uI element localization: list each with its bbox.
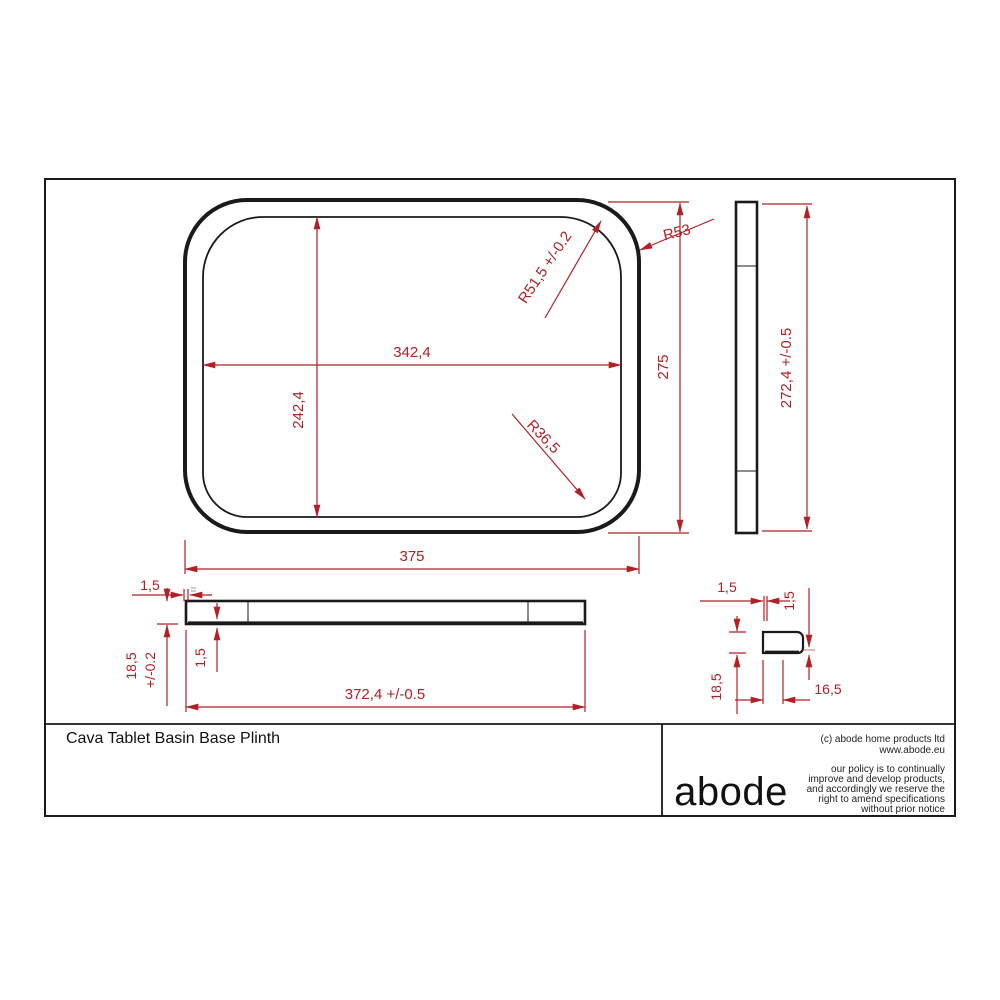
dim-front-thickness-tol: +/-0.2 — [142, 652, 158, 688]
website-line: www.abode.eu — [878, 745, 945, 756]
dim-outer-height: 275 — [655, 354, 672, 379]
dim-inner-radius-top: R51,5 +/-0.2 — [515, 228, 575, 306]
side-outline — [736, 202, 757, 533]
dim-outer-radius: R53 — [661, 221, 692, 244]
dim-front-thickness: 18,5 — [123, 652, 139, 679]
side-view: 272,4 +/-0.5 — [736, 202, 812, 533]
leader-inner-radius-bottom — [512, 414, 585, 499]
drawing-canvas: Cava Tablet Basin Base Plinth abode (c) … — [0, 0, 1000, 1000]
dim-outer-width: 375 — [399, 548, 424, 565]
drawing-title: Cava Tablet Basin Base Plinth — [66, 730, 280, 747]
abode-logo: abode — [674, 770, 788, 814]
dim-profile-wall-right: 1,5 — [781, 591, 797, 611]
copyright-line: (c) abode home products ltd — [820, 734, 945, 745]
dim-front-width: 372,4 +/-0.5 — [345, 686, 425, 703]
profile-detail-view: 1,5 1,5 18,5 16,5 — [700, 579, 842, 714]
front-outline — [186, 601, 585, 624]
dim-inner-width: 342,4 — [393, 344, 431, 361]
dim-profile-width: 16,5 — [814, 681, 841, 697]
page-border — [45, 179, 955, 816]
front-view: 1,5 18,5 +/-0.2 1,5 372,4 +/-0.5 — [123, 577, 585, 712]
dim-front-base-wall: 1,5 — [192, 648, 208, 668]
policy-line-5: without prior notice — [860, 804, 945, 815]
drawing-sheet: Cava Tablet Basin Base Plinth abode (c) … — [0, 0, 1000, 1000]
dim-inner-height: 242,4 — [290, 391, 307, 429]
dim-profile-wall-top: 1,5 — [717, 579, 737, 595]
dim-side-height: 272,4 +/-0.5 — [778, 328, 795, 408]
dim-profile-height: 18,5 — [708, 673, 724, 700]
plan-view: 342,4 242,4 375 275 R53 R51,5 +/-0.2 R36… — [185, 200, 714, 574]
dim-front-edge-wall: 1,5 — [140, 577, 160, 593]
profile-outline — [763, 632, 803, 653]
